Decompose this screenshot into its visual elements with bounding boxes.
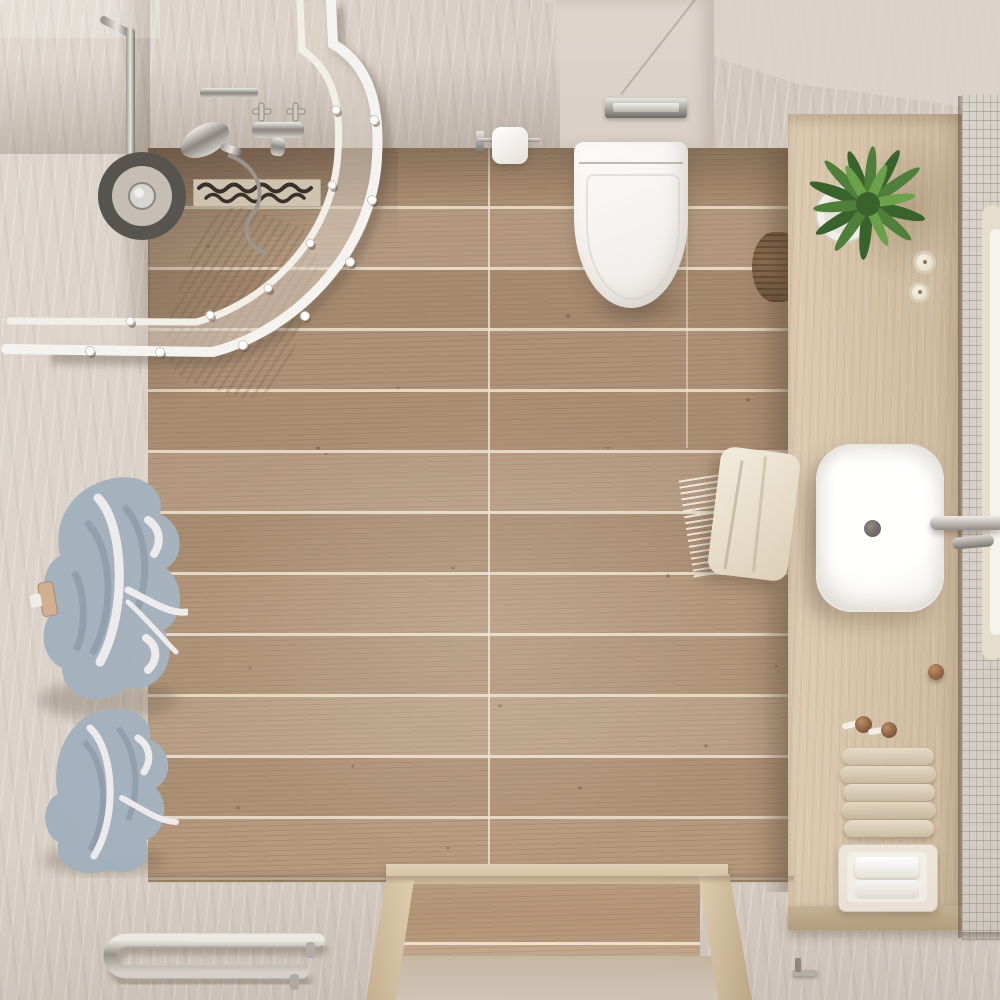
bathroom-top-view [0,0,1000,1000]
robe-hanger [28,581,58,619]
candle-wick-2 [918,290,922,294]
candle-wick [923,260,927,264]
bronze-knob [928,664,944,680]
doorway-floor [400,884,700,962]
doorway-outside-floor [392,956,722,1000]
toilet-seat-edge [586,174,680,300]
door-stop [792,958,822,978]
shower-shelf-bar [200,88,258,98]
bathrobe-1 [28,462,188,732]
hand-towel-group [686,446,808,596]
floor-marble-seam [148,876,794,884]
shower-enclosure [0,0,400,400]
radiator-bracket-2 [290,974,299,990]
folded-towel-2 [855,880,919,899]
candle [913,251,936,274]
flush-plate-button [613,103,679,112]
rolled-towel [841,802,936,819]
towel-hook-2 [881,722,897,738]
rolled-towel [844,820,934,837]
rolled-towel [840,766,936,783]
mirror-glass [990,229,1000,635]
radiator-bracket [306,942,315,958]
rain-shower-head [98,152,186,240]
toilet-seat-seam [579,162,683,164]
flush-plate [605,98,687,118]
vessel-sink [816,444,944,612]
toilet-paper-bracket [476,131,484,153]
mirror-edge [982,205,1000,660]
mosaic-floor-shadow [962,932,1000,942]
rolled-towel-stack [840,748,940,840]
folded-towel [855,857,919,878]
bathrobe-2 [30,698,180,883]
candle-2 [909,282,930,303]
faucet-spout [930,516,1000,530]
towel-tray [838,844,938,912]
rolled-towel [842,748,934,765]
rolled-towel [843,784,935,801]
towel-radiator [66,912,336,997]
toilet-paper-roll [492,127,528,164]
shower-hose [228,155,266,252]
mixer-valve [252,103,305,157]
sink-drain [864,520,881,537]
